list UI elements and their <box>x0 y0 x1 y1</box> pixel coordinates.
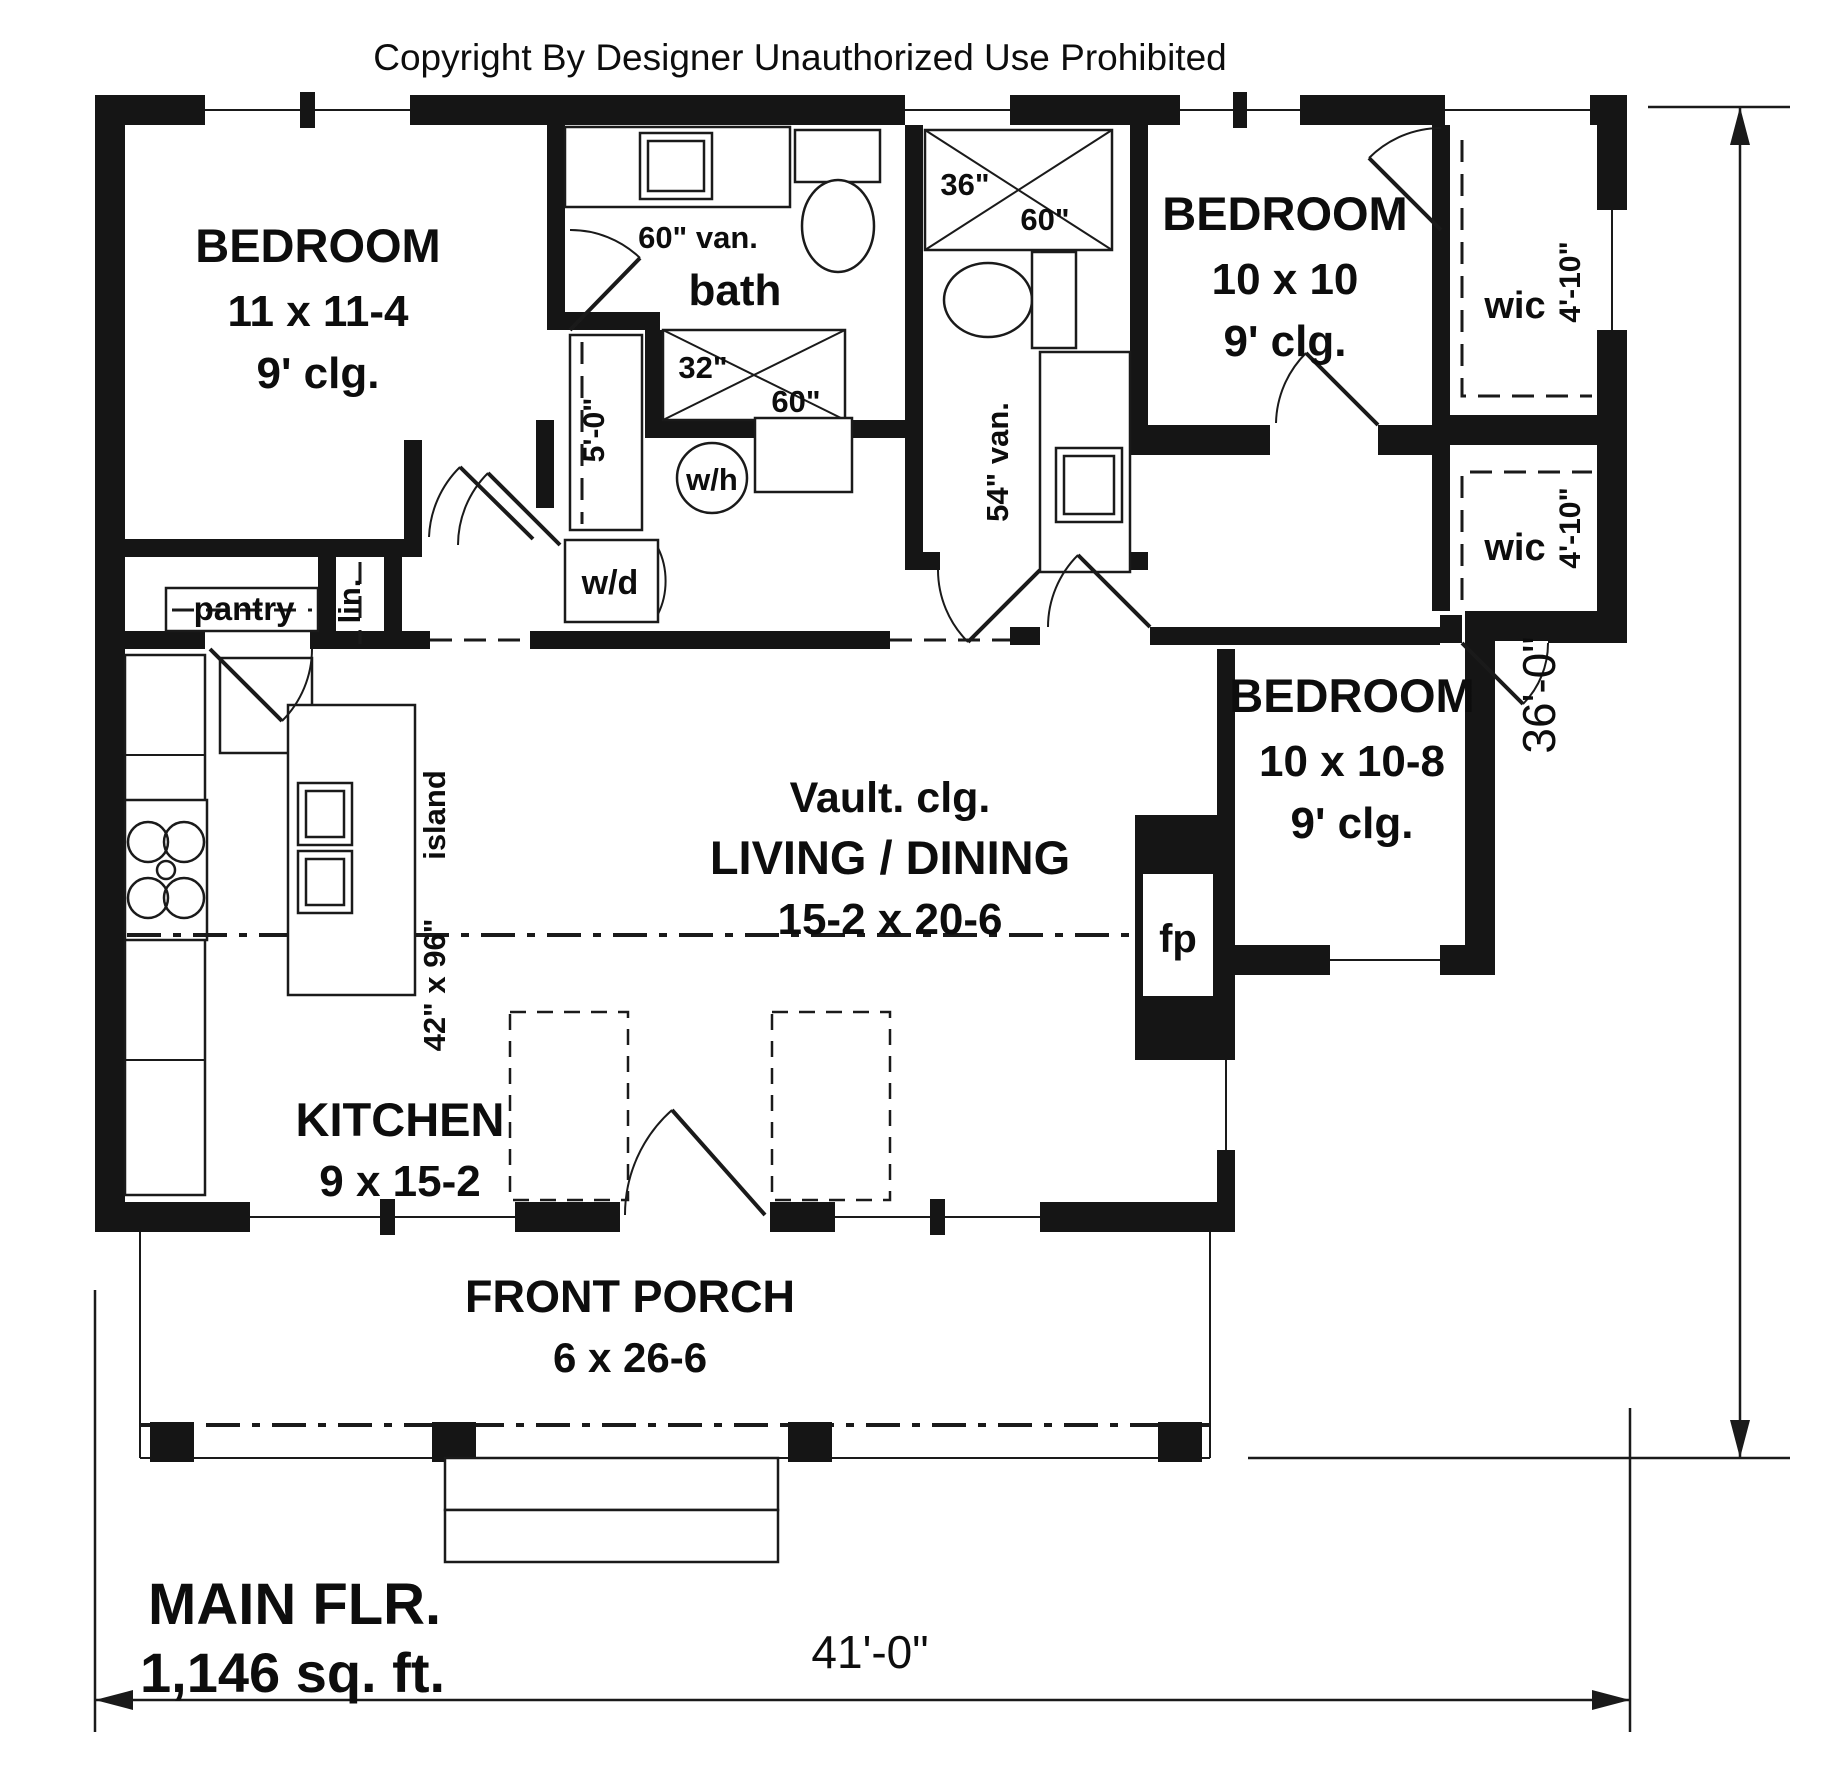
kitchen-name: KITCHEN <box>296 1093 505 1146</box>
bedroom2-ceiling: 9' clg. <box>1224 317 1347 366</box>
washer-dryer-label: w/d <box>581 564 639 602</box>
bedroom1-name: BEDROOM <box>195 219 440 272</box>
bath2-toilet-tank <box>1032 252 1076 348</box>
bath1-name: bath <box>689 266 782 315</box>
wic2-label: wic <box>1483 527 1545 569</box>
wic1-label: wic <box>1483 285 1545 327</box>
porch-name: FRONT PORCH <box>465 1271 795 1322</box>
bedroom2-dim: 10 x 10 <box>1212 255 1359 304</box>
bath1-toilet-bowl <box>802 180 874 272</box>
bath2-shower-width: 60" <box>1020 202 1069 237</box>
porch-post <box>788 1422 832 1462</box>
bath2-sink <box>1056 448 1122 522</box>
water-heater-label: w/h <box>685 462 738 497</box>
living-name: LIVING / DINING <box>710 831 1070 884</box>
kitchen-island <box>288 705 415 995</box>
bath1-shower-width: 60" <box>771 384 820 419</box>
laundry-counter <box>755 418 852 492</box>
range <box>125 800 207 940</box>
bath1-toilet-tank <box>795 130 880 182</box>
island-dim: 42" x 96" <box>417 919 452 1052</box>
bath1-sink <box>640 133 712 199</box>
porch-post <box>1158 1422 1202 1462</box>
floor-area: 1,146 sq. ft. <box>140 1641 445 1704</box>
kitchen-dim: 9 x 15-2 <box>319 1157 480 1206</box>
height-dimension: 36'-0" <box>1513 636 1565 753</box>
floor-title: MAIN FLR. <box>148 1572 441 1637</box>
front-door <box>625 1110 765 1215</box>
porch-dim: 6 x 26-6 <box>553 1334 707 1381</box>
bedroom1-dim: 11 x 11-4 <box>227 287 409 336</box>
bath1-vanity-label: 60" van. <box>638 220 758 255</box>
pantry-label: pantry <box>194 590 296 627</box>
wic1-dim: 4'-10" <box>1554 241 1587 322</box>
island-label: island <box>417 770 452 860</box>
linen-label: lin. <box>332 579 367 624</box>
width-dimension: 41'-0" <box>811 1626 928 1678</box>
bedroom2-name: BEDROOM <box>1162 187 1407 240</box>
porch-post <box>150 1422 194 1462</box>
fireplace-label: fp <box>1159 917 1197 961</box>
bedroom3-ceiling: 9' clg. <box>1291 799 1414 848</box>
bath2-toilet-bowl <box>944 263 1032 337</box>
fireplace: fp <box>1135 815 1235 1060</box>
living-ceiling: Vault. clg. <box>790 774 991 822</box>
bedroom1-ceiling: 9' clg. <box>257 349 380 398</box>
floor-plan-page: fp <box>0 0 1824 1776</box>
floor-plan-drawing: fp <box>0 0 1824 1776</box>
wic2-dim: 4'-10" <box>1554 487 1587 568</box>
bath2-vanity-label: 54" van. <box>980 402 1015 522</box>
porch-post <box>432 1422 476 1462</box>
copyright-text: Copyright By Designer Unauthorized Use P… <box>373 37 1227 78</box>
window-bay-dashed-left <box>510 1012 628 1200</box>
porch-steps <box>445 1458 778 1562</box>
bath1-shower-depth: 32" <box>678 350 727 385</box>
bedroom3-name: BEDROOM <box>1229 669 1474 722</box>
bath2-shower-depth: 36" <box>940 167 989 202</box>
hall-closet-dim: 5'-0" <box>578 398 611 463</box>
living-dim: 15-2 x 20-6 <box>777 895 1002 944</box>
bedroom3-dim: 10 x 10-8 <box>1259 737 1445 786</box>
window-bay-dashed-right <box>772 1012 890 1200</box>
